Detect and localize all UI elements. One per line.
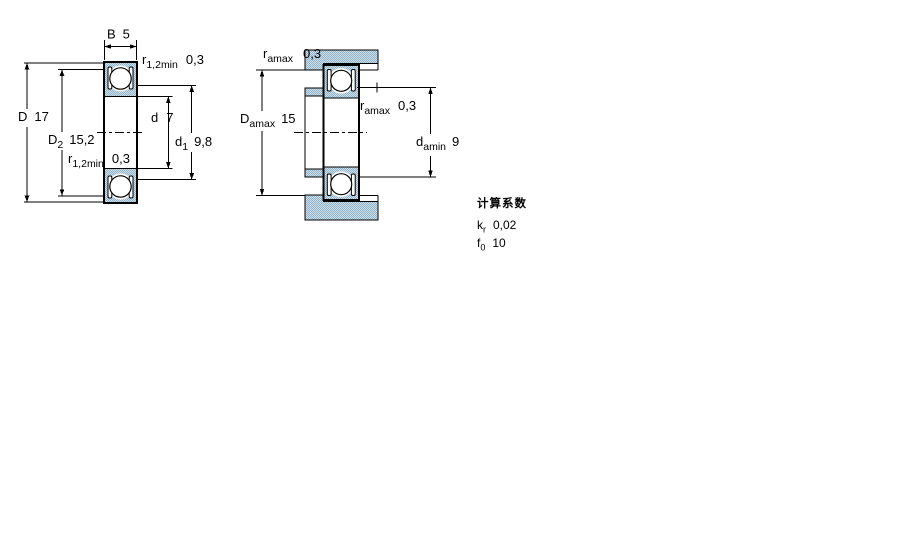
left-view-bearing-cross-section: B5 r1,2min0,3 D17 D215,2 d7 d19,8 r1,2mi… (18, 27, 212, 204)
label-d1: d19,8 (175, 134, 212, 153)
label-Da: Damax15 (240, 111, 296, 130)
factor-f0: f010 (477, 236, 527, 254)
calculation-factors-heading: 计算系数 (477, 195, 527, 211)
label-B: B5 (107, 27, 130, 42)
ball-bottom (110, 176, 131, 197)
label-r12-top: r1,2min0,3 (142, 52, 204, 71)
ball-bottom (331, 174, 352, 195)
calculation-factors: 计算系数 kr0,02 f010 (477, 195, 527, 255)
factor-kr: kr0,02 (477, 218, 527, 236)
label-D: D17 (18, 109, 49, 124)
dim-width-B (105, 40, 137, 60)
dim-shaft-abutment-da (357, 83, 436, 178)
label-d: d7 (151, 110, 173, 125)
dim-bore-d (138, 97, 173, 169)
label-ra-mid: ramax0,3 (360, 98, 416, 117)
label-D2: D215,2 (48, 132, 95, 151)
bearing-dimension-drawing: B5 r1,2min0,3 D17 D215,2 d7 d19,8 r1,2mi… (0, 0, 900, 560)
shaft-shoulder-bottom (305, 169, 324, 177)
right-view-mounted-bearing: ramax0,3 Damax15 ramax0,3 damin9 (240, 46, 459, 220)
shaft-shoulder-top (305, 88, 324, 96)
drawing-svg: B5 r1,2min0,3 D17 D215,2 d7 d19,8 r1,2mi… (0, 0, 900, 560)
label-r12-bottom: r1,2min0,3 (68, 151, 130, 170)
label-da: damin9 (416, 134, 459, 153)
ball-top (331, 70, 352, 91)
dim-shoulder-diameter-d1 (138, 85, 196, 179)
ball-top (110, 68, 131, 89)
